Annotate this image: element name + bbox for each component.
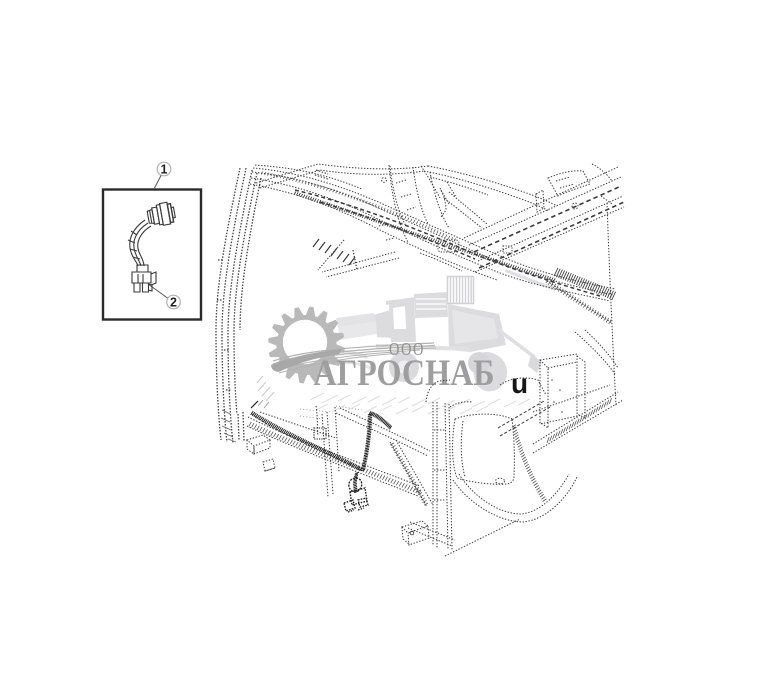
svg-text:2: 2 xyxy=(170,296,177,310)
svg-text:АГРОСНАБ: АГРОСНАБ xyxy=(314,353,495,394)
svg-text:1: 1 xyxy=(161,163,168,177)
svg-text:u: u xyxy=(511,368,528,399)
